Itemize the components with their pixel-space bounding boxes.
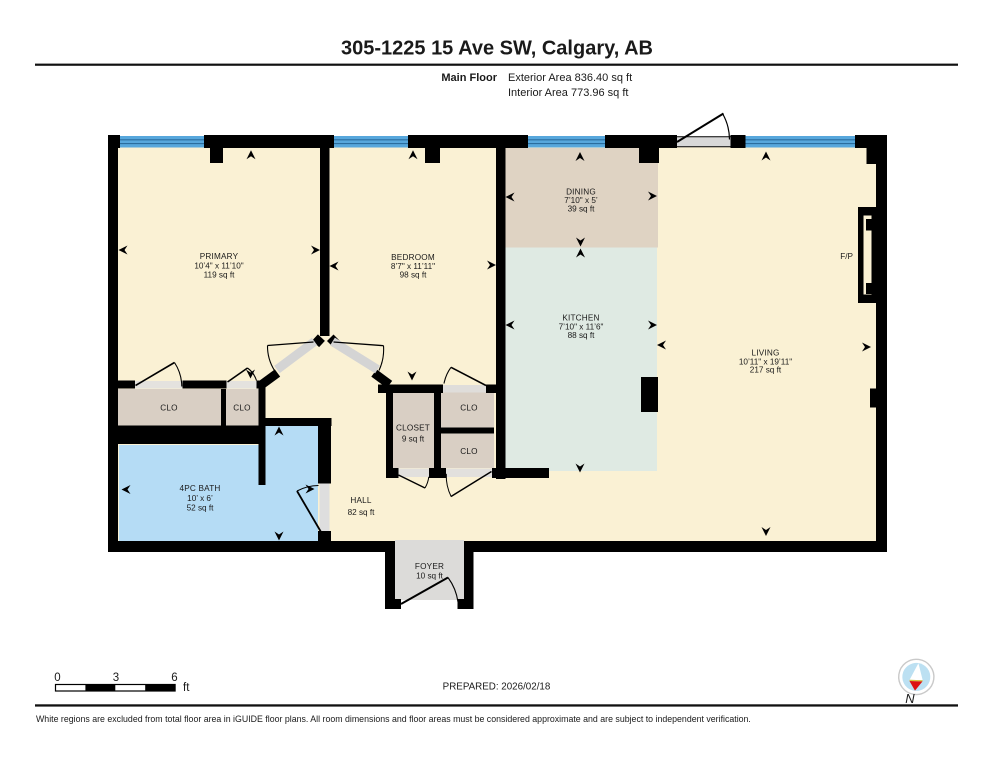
svg-text:98 sq ft: 98 sq ft <box>400 271 428 280</box>
svg-text:Main Floor: Main Floor <box>441 72 497 84</box>
svg-text:0: 0 <box>54 672 60 684</box>
svg-text:119 sq ft: 119 sq ft <box>204 271 236 280</box>
svg-text:N: N <box>905 691 915 706</box>
svg-text:305-1225 15 Ave SW, Calgary, A: 305-1225 15 Ave SW, Calgary, AB <box>341 38 653 60</box>
svg-text:9 sq ft: 9 sq ft <box>402 435 425 444</box>
svg-text:White regions are excluded fro: White regions are excluded from total fl… <box>36 714 751 724</box>
svg-text:Interior Area 773.96 sq ft: Interior Area 773.96 sq ft <box>508 87 628 99</box>
svg-text:CLO: CLO <box>460 447 477 456</box>
svg-text:82 sq ft: 82 sq ft <box>348 508 376 517</box>
svg-text:F/P: F/P <box>840 252 853 261</box>
svg-text:CLO: CLO <box>460 404 477 413</box>
svg-text:LIVING: LIVING <box>751 349 779 358</box>
svg-text:10’4" x 11’10": 10’4" x 11’10" <box>194 262 243 271</box>
svg-text:39 sq ft: 39 sq ft <box>568 205 596 214</box>
svg-text:HALL: HALL <box>350 496 372 505</box>
svg-text:52 sq ft: 52 sq ft <box>187 504 215 513</box>
svg-text:FOYER: FOYER <box>415 562 444 571</box>
svg-text:6: 6 <box>171 672 177 684</box>
svg-text:CLOSET: CLOSET <box>396 424 430 433</box>
svg-text:KITCHEN: KITCHEN <box>562 314 599 323</box>
svg-text:PRIMARY: PRIMARY <box>200 252 239 261</box>
svg-text:217 sq ft: 217 sq ft <box>750 366 782 375</box>
svg-text:3: 3 <box>113 672 119 684</box>
svg-text:88 sq ft: 88 sq ft <box>568 331 596 340</box>
svg-text:Exterior Area 836.40 sq ft: Exterior Area 836.40 sq ft <box>508 72 632 84</box>
svg-text:10’ x 6’: 10’ x 6’ <box>187 494 213 503</box>
svg-text:4PC BATH: 4PC BATH <box>179 484 220 493</box>
svg-text:PREPARED: 2026/02/18: PREPARED: 2026/02/18 <box>443 682 551 693</box>
svg-text:CLO: CLO <box>160 404 177 413</box>
svg-text:CLO: CLO <box>233 404 250 413</box>
svg-text:ft: ft <box>183 682 190 694</box>
svg-text:BEDROOM: BEDROOM <box>391 253 435 262</box>
svg-text:10 sq ft: 10 sq ft <box>416 572 444 581</box>
